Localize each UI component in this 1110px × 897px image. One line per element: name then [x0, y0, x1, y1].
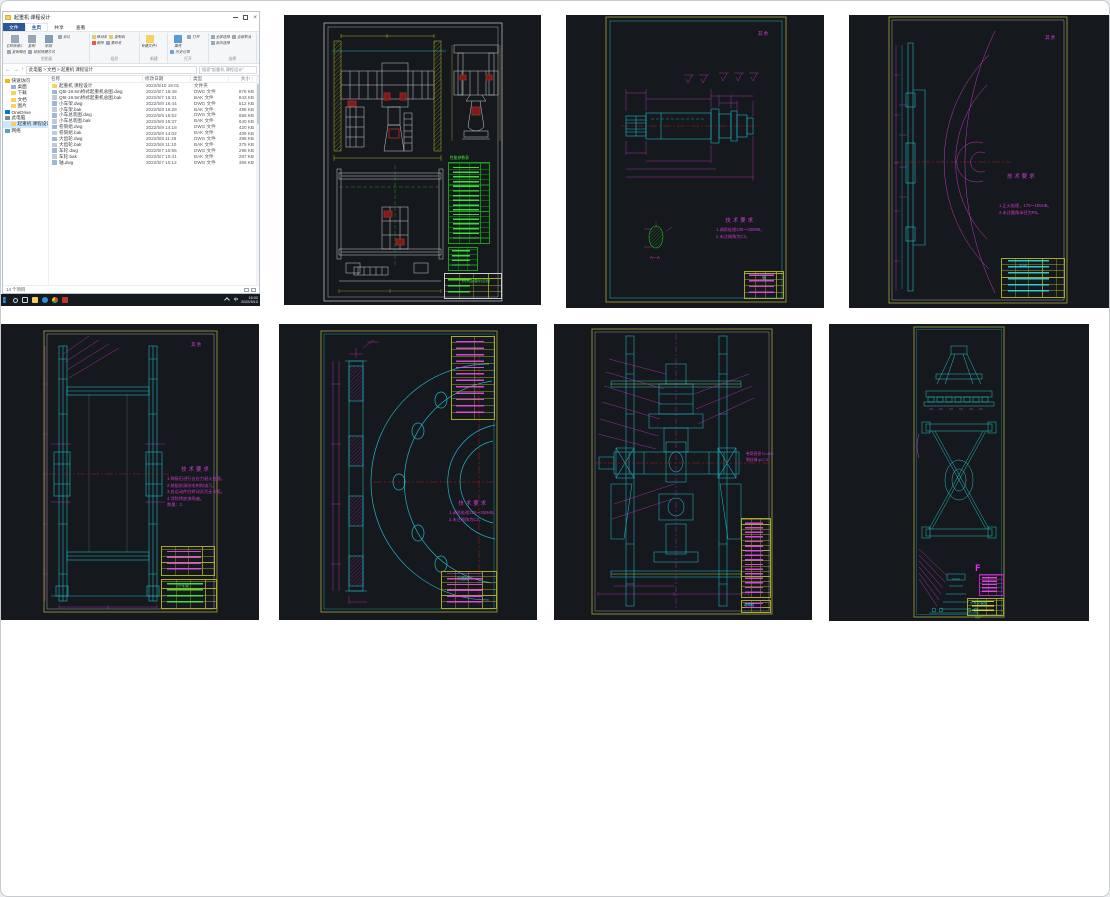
column-headers: 名称 修改日期 类型 大小 — [49, 76, 259, 83]
file-icon — [52, 125, 57, 130]
start-icon[interactable] — [3, 297, 9, 303]
column-name[interactable]: 名称 — [49, 76, 143, 82]
wheel-drawing — [849, 15, 1109, 308]
autocad-icon[interactable] — [62, 297, 68, 303]
keyway-section — [644, 221, 672, 248]
red-details-plan — [384, 211, 404, 245]
title-block — [444, 273, 502, 299]
delete-icon[interactable]: 删除 — [92, 41, 104, 46]
tech-note-line: 2.未注圆角半径为R5。 — [999, 210, 1052, 217]
group-label: 剪贴板 — [6, 57, 88, 63]
file-icon — [52, 143, 57, 148]
folder-icon — [5, 79, 10, 83]
up-button[interactable]: ↑ — [21, 67, 24, 73]
chrome-browser-icon[interactable] — [52, 297, 58, 303]
folder-icon — [5, 110, 10, 114]
navigation-pane: 快速访问 桌面 下载 文档 — [3, 76, 49, 285]
bridge-plan-view — [337, 169, 443, 281]
breadcrumb[interactable]: 此电脑 > 文档 > 起重机 课程设计 — [26, 66, 197, 74]
technical-requirements: 技术要求 1.焊接后进行去应力退火处理。2.装配前清除毛刺和油污。3.各运动件应… — [167, 466, 225, 509]
close-button[interactable]: × — [253, 15, 257, 21]
ribbon-group-select: 全部选择全部取消反向选择 选择 — [209, 33, 257, 63]
title-block-name: 卷筒组 — [744, 602, 754, 607]
windows-taskbar: 中 16:02 2022/5/10 — [1, 294, 260, 306]
status-bar: 14 个项目 — [3, 285, 259, 293]
side-notes: 卷筒直径 D=400钢丝绳 φ17.5 — [746, 452, 774, 464]
title-block-name: 桥式起重机总图 — [462, 278, 490, 284]
file-icon — [52, 119, 57, 124]
technical-requirements: 技术要求 1.调质处理220～250HB。2.未注倒角为C2。 — [449, 500, 497, 523]
title-block — [441, 571, 497, 609]
tab-view[interactable]: 查看 — [70, 23, 92, 31]
surface-finish-mark: 其余 — [1045, 35, 1056, 41]
input-language[interactable]: 中 — [234, 297, 239, 303]
section-label: A—A — [650, 255, 660, 262]
group-label: 新建 — [141, 57, 166, 63]
title-block — [1001, 258, 1065, 298]
side-note-line: 钢丝绳 φ17.5 — [746, 458, 774, 464]
thumbnail-view-toggle[interactable] — [251, 288, 256, 292]
folder-icon — [5, 116, 10, 120]
file-row[interactable]: 轴.dwg 2022/5/7 10:12 DWG 文件 356 KB — [49, 160, 259, 166]
new-folder-icon[interactable]: 新建文件夹 — [142, 35, 157, 49]
file-icon — [52, 131, 57, 136]
column-date[interactable]: 修改日期 — [143, 76, 191, 82]
tab-home[interactable]: 主页 — [25, 23, 49, 31]
search-input[interactable]: 搜索"起重机 课程设计" — [199, 66, 257, 74]
technical-requirements: 技术要求 1.调质处理220～250HB。2.未注倒角为C2。 — [716, 217, 764, 240]
minimize-button[interactable] — [233, 17, 238, 18]
back-button[interactable]: ← — [5, 67, 11, 73]
folder-icon — [5, 129, 10, 133]
cad-sheet-wheel: 其余 技术要求 1.正火处理，170～195HB。2.未注圆角半径为R5。 车轮 — [849, 15, 1109, 308]
tech-note-line: 1.调质处理220～250HB。 — [716, 227, 764, 234]
system-tray: 中 16:02 2022/5/10 — [225, 296, 258, 305]
paste-icon[interactable]: 粘贴 — [41, 35, 56, 49]
file-icon — [52, 90, 57, 95]
file-icon — [52, 101, 57, 106]
tech-note-line: 2.未注倒角为C2。 — [716, 234, 764, 241]
task-view-icon[interactable] — [22, 297, 28, 303]
tech-note-line: 2.未注倒角为C2。 — [449, 517, 497, 524]
properties-icon[interactable]: 属性 — [170, 35, 185, 49]
folder-icon — [11, 98, 16, 102]
file-icon — [52, 107, 57, 112]
tech-note-line: 1.调质处理220～250HB。 — [449, 510, 497, 517]
cad-sheet-trolley-frame: 其余 技术要求 1.焊接后进行去应力退火处理。2.装配前清除毛刺和油污。3.各运… — [1, 324, 259, 620]
file-icon — [52, 113, 57, 118]
bridge-front-view — [341, 63, 434, 151]
title-block-name: 车轮 — [1019, 263, 1027, 269]
window-title: 起重机 课程设计 — [14, 14, 50, 21]
title-block-name: 轴 — [762, 275, 766, 281]
ribbon-group-organize: 移动到复制到删除重命名 组织 — [90, 33, 141, 63]
forward-button[interactable]: → — [13, 67, 19, 73]
title-bar[interactable]: 起重机 课程设计 × — [3, 12, 259, 23]
tab-share[interactable]: 共享 — [48, 23, 70, 31]
section-dims — [894, 45, 907, 291]
taskbar-clock[interactable]: 16:02 2022/5/10 — [241, 296, 258, 305]
technical-notes: 1.正火处理，170～195HB。2.未注圆角半径为R5。 — [999, 203, 1052, 216]
cad-sheet-crane-general: 性能参数表 桥式起重机总图 — [284, 15, 541, 305]
ribbon-tabs: 文件 主页 共享 查看 — [3, 23, 259, 32]
title-block-name: 小车总装图 — [970, 600, 987, 605]
group-label: 选择 — [210, 57, 255, 63]
end-view — [454, 45, 498, 139]
group-label: 组织 — [91, 57, 139, 63]
detail-leader-lines — [919, 549, 947, 606]
technical-requirements: 技术要求 — [1007, 173, 1037, 183]
quick-access-toolbar — [5, 15, 11, 20]
tech-note-line: 1.焊接后进行去应力退火处理。 — [167, 476, 225, 483]
cad-sheet-trolley-general: F 小车总装图 — [829, 324, 1089, 621]
performance-table-title: 性能参数表 — [450, 156, 469, 161]
tech-note-line: 1.正火处理，170～195HB。 — [999, 203, 1052, 210]
crane-drawing — [284, 15, 541, 305]
select-none-icon[interactable]: 全部取消 — [232, 35, 251, 40]
group-label: 打开 — [169, 57, 206, 63]
legend-table — [448, 247, 478, 271]
parameter-table — [161, 546, 215, 576]
history-icon[interactable]: 历史记录 — [170, 50, 189, 55]
cut-icon[interactable]: 剪切 — [58, 35, 70, 40]
screenshot-collage: 起重机 课程设计 × 文件 主页 共享 查看 固定到快速访问复制粘贴剪切复制路径… — [0, 0, 1110, 897]
trolley-cross-frame-view — [917, 422, 996, 538]
ribbon-group-clipboard: 固定到快速访问复制粘贴剪切复制路径粘贴快捷方式 剪贴板 — [5, 33, 90, 63]
file-icon — [52, 84, 57, 89]
column-size[interactable]: 大小 — [229, 76, 253, 82]
list-view-toggle[interactable] — [244, 288, 249, 292]
gear-section-view — [345, 361, 367, 591]
folder-icon — [11, 122, 16, 126]
inner-lines — [89, 395, 127, 552]
invert-selection-icon[interactable]: 反向选择 — [211, 41, 230, 46]
open-icon[interactable]: 打开 — [187, 35, 199, 40]
dims-and-leaders — [43, 336, 165, 609]
item-count: 14 个项目 — [6, 287, 25, 293]
paste-shortcut-icon[interactable]: 粘贴快捷方式 — [28, 50, 55, 55]
file-icon — [52, 137, 57, 142]
drum-drawing — [554, 324, 812, 620]
file-icon — [52, 95, 57, 100]
folder-icon — [5, 15, 11, 20]
pin-icon[interactable]: 固定到快速访问 — [7, 35, 22, 49]
scrollbar[interactable] — [256, 76, 259, 285]
edge-browser-icon[interactable] — [42, 297, 48, 303]
ribbon: 固定到快速访问复制粘贴剪切复制路径粘贴快捷方式 剪贴板 移动到复制到删除重命名 … — [3, 32, 259, 64]
tab-file[interactable]: 文件 — [3, 23, 25, 31]
address-bar: ← → ↑ 此电脑 > 文档 > 起重机 课程设计 搜索"起重机 课程设计" — [3, 64, 259, 76]
cad-sheet-gear: 技术要求 1.调质处理220～250HB。2.未注倒角为C2。 大齿轮 — [279, 324, 537, 620]
copy-icon[interactable]: 复制 — [24, 35, 39, 49]
rename-icon[interactable]: 重命名 — [106, 41, 122, 46]
folder-icon — [11, 91, 16, 95]
side-note-line: 卷筒直径 D=400 — [746, 452, 774, 458]
select-all-icon[interactable]: 全部选择 — [211, 35, 230, 40]
red-details-front — [348, 93, 406, 138]
file-explorer-window: 起重机 课程设计 × 文件 主页 共享 查看 固定到快速访问复制粘贴剪切复制路径… — [2, 11, 260, 294]
search-icon[interactable] — [13, 298, 18, 303]
trolley-top-view — [924, 346, 994, 406]
scrollbar-thumb[interactable] — [257, 84, 259, 124]
ribbon-group-open: 属性打开历史记录 打开 — [168, 33, 208, 63]
end-view-dims — [452, 45, 500, 141]
title-block-name: 小车架 — [177, 583, 189, 589]
maximize-button[interactable] — [243, 15, 248, 20]
file-icon — [52, 154, 57, 159]
folder-icon — [11, 85, 16, 89]
trolley-drawing — [829, 324, 1089, 621]
copy-path-icon[interactable]: 复制路径 — [7, 50, 26, 55]
column-type[interactable]: 类型 — [191, 76, 229, 82]
sidebar-item[interactable]: 网络 — [3, 128, 48, 134]
shaft-drawing — [566, 15, 824, 308]
parts-table — [979, 574, 1004, 596]
file-icon — [52, 148, 57, 153]
tray-expand-icon[interactable] — [224, 297, 230, 303]
frame-structure — [51, 346, 166, 601]
plan-dims — [339, 289, 441, 293]
title-block-name: 大齿轮 — [457, 576, 469, 582]
drum-structure — [599, 336, 741, 606]
title-block — [161, 579, 217, 609]
cad-sheet-shaft: 其余 技术要求 1.调质处理220～250HB。2.未注倒角为C2。 A—A 轴 — [566, 15, 824, 308]
gear-parameter-table — [451, 336, 495, 420]
surface-finish-mark: 其余 — [758, 31, 769, 37]
ribbon-group-new: 新建文件夹 新建 — [140, 33, 168, 63]
detail-view-label: F — [975, 564, 980, 574]
bom-table — [741, 518, 771, 598]
file-explorer-icon[interactable] — [32, 297, 38, 303]
tech-note-line: 数量：2 — [167, 502, 225, 509]
file-list: 名称 修改日期 类型 大小 起重机 课程设计 2022/5/10 16:01 文… — [49, 76, 259, 285]
surface-finish-mark: 其余 — [191, 342, 202, 348]
file-icon — [52, 160, 57, 165]
sheet-frame — [606, 17, 786, 302]
tech-note-line: 3.各运动件应转动灵活无卡阻。 — [167, 489, 225, 496]
copy-to-icon[interactable]: 复制到 — [109, 35, 125, 40]
performance-table — [448, 162, 490, 244]
move-to-icon[interactable]: 移动到 — [92, 35, 108, 40]
folder-icon — [11, 104, 16, 108]
cad-sheet-drum-assembly: 卷筒直径 D=400钢丝绳 φ17.5 卷筒组 — [554, 324, 812, 620]
gear-drawing — [279, 324, 537, 620]
